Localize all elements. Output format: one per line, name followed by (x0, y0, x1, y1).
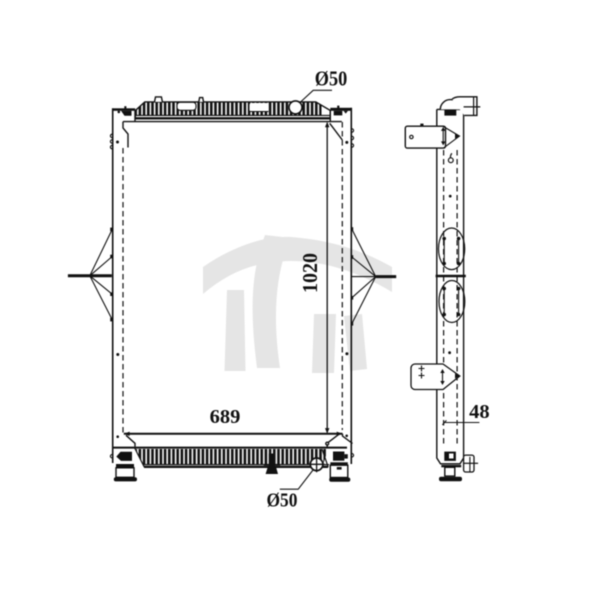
svg-text:Ø50: Ø50 (315, 67, 348, 91)
svg-text:689: 689 (210, 406, 241, 428)
svg-text:48: 48 (469, 401, 490, 423)
svg-text:1020: 1020 (298, 253, 322, 293)
svg-text:Ø50: Ø50 (267, 490, 298, 512)
